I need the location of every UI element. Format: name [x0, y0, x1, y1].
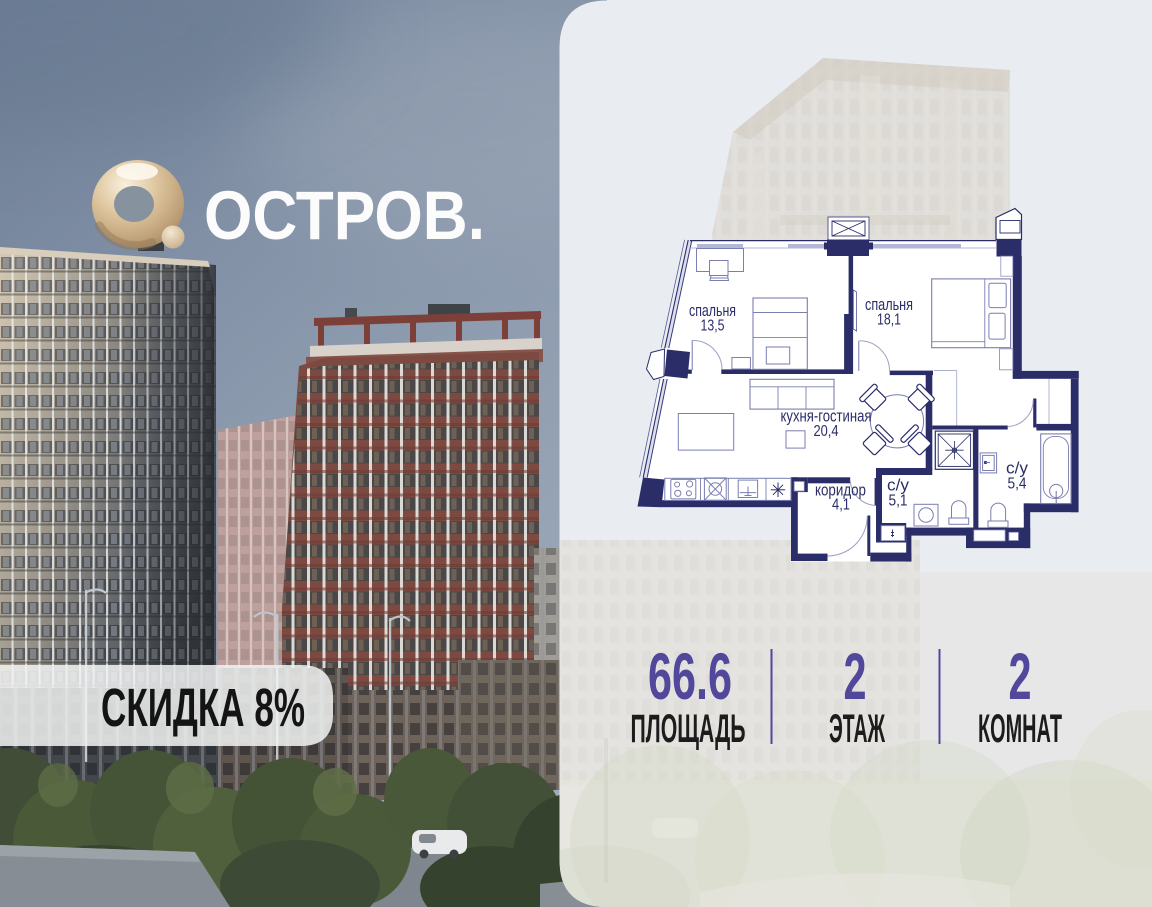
svg-text:КОМНАТ: КОМНАТ [978, 707, 1062, 751]
svg-text:ОСТРОВ.: ОСТРОВ. [204, 177, 485, 254]
svg-text:5,1: 5,1 [889, 493, 908, 510]
svg-text:20,4: 20,4 [814, 423, 839, 440]
svg-text:ПЛОЩАДЬ: ПЛОЩАДЬ [631, 707, 746, 751]
svg-text:2: 2 [844, 639, 867, 713]
svg-text:2: 2 [1009, 639, 1032, 713]
svg-text:4,1: 4,1 [832, 497, 850, 514]
svg-text:СКИДКА 8%: СКИДКА 8% [101, 678, 305, 738]
svg-text:13,5: 13,5 [701, 318, 725, 335]
svg-text:18,1: 18,1 [877, 312, 901, 329]
svg-text:66.6: 66.6 [648, 639, 732, 713]
svg-text:ЭТАЖ: ЭТАЖ [829, 707, 885, 751]
svg-text:5,4: 5,4 [1008, 476, 1027, 493]
